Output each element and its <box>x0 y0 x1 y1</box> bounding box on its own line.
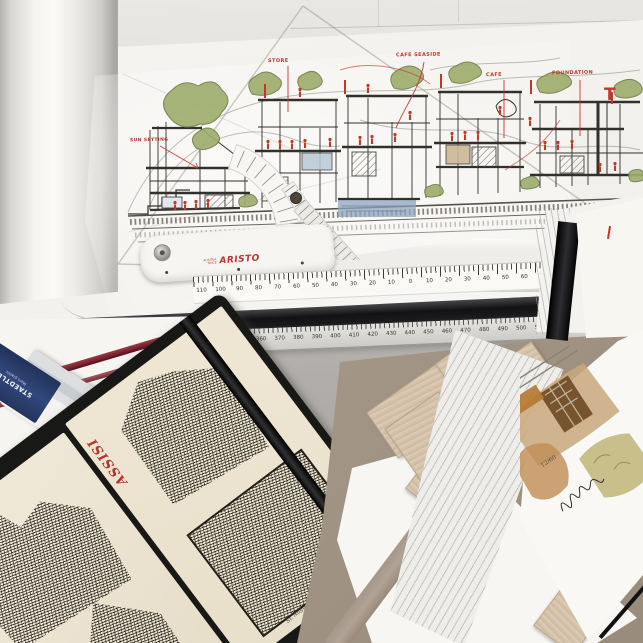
head-screw-dot <box>237 268 240 271</box>
ruler-number: 70 <box>274 284 281 290</box>
ruler-number: 10 <box>426 278 433 284</box>
ruler-number: 60 <box>521 274 528 280</box>
ruler-number: 100 <box>215 287 226 293</box>
ruler-number: 40 <box>331 282 338 288</box>
brand-small-text: AUSTRIA SINCE <box>200 258 216 265</box>
head-screw-dot <box>165 271 168 274</box>
ruler-number: 80 <box>255 285 262 291</box>
ruler-number: 30 <box>350 281 357 287</box>
sketch-label-cafe-seaside: CAFE SEASIDE <box>396 52 441 59</box>
ruler-number: 450 <box>423 329 434 335</box>
ruler-number: 50 <box>312 283 319 289</box>
ruler-number: 50 <box>502 275 509 281</box>
ruler-number: 40 <box>483 276 490 282</box>
sketch-label-foundation: FOUNDATION <box>552 70 593 77</box>
ruler-number: 60 <box>293 284 300 290</box>
ruler-number: 0 <box>409 279 413 285</box>
ruler-number: 490 <box>497 326 508 332</box>
ruler-number: 460 <box>442 328 453 334</box>
ruler-number: 390 <box>312 334 323 340</box>
ruler-number: 440 <box>404 330 415 336</box>
brand-lockup: AUSTRIA SINCE ARISTO <box>200 246 321 270</box>
sketch-label-cafe: CAFE <box>486 72 502 78</box>
ruler-number: 410 <box>349 332 360 338</box>
ruler-number: 110 <box>196 287 207 293</box>
ruler-number: 20 <box>369 280 376 286</box>
ruler-number: 400 <box>330 333 341 339</box>
aristo-logo: ARISTO <box>219 253 260 266</box>
ruler-number: 370 <box>274 335 285 341</box>
red-tee-mark: T <box>604 85 616 105</box>
head-rivet <box>153 244 171 262</box>
sketch-label-store: STORE <box>268 58 289 64</box>
ruler-number: 10 <box>388 280 395 286</box>
ruler-number: 30 <box>464 276 471 282</box>
ruler-number: 20 <box>445 277 452 283</box>
watercolour-painting <box>520 330 643 590</box>
ruler-number: 480 <box>479 327 490 333</box>
pivot-screw <box>291 193 302 204</box>
ruler-number: 420 <box>367 332 378 338</box>
ruler-number: 380 <box>293 335 304 341</box>
ruler-number: 430 <box>386 331 397 337</box>
ruler-number: 90 <box>236 286 243 292</box>
sketch-label-sun-setting: SUN SETTING <box>130 138 168 144</box>
photo-architect-desk: T STORE CAFE SEASIDE CAFE FOUNDATION SUN… <box>0 0 643 643</box>
